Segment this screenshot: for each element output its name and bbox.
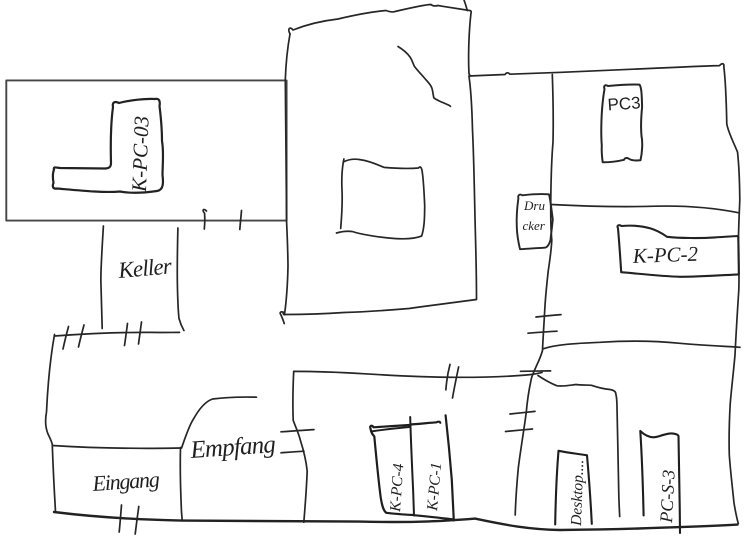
svg-text:K-PC-2: K-PC-2 <box>631 242 699 268</box>
svg-text:PC3: PC3 <box>607 93 641 114</box>
svg-text:Desktop....: Desktop.... <box>568 459 587 527</box>
svg-text:PC-S-3: PC-S-3 <box>656 469 679 524</box>
svg-text:Keller: Keller <box>116 253 174 283</box>
svg-text:K-PC-03: K-PC-03 <box>127 116 154 194</box>
svg-text:Eingang: Eingang <box>91 466 161 496</box>
svg-text:Dru: Dru <box>523 198 545 213</box>
svg-text:cker: cker <box>523 218 546 233</box>
svg-text:K-PC-4: K-PC-4 <box>387 463 407 514</box>
svg-text:K-PC-1: K-PC-1 <box>424 462 445 513</box>
svg-text:Empfang: Empfang <box>189 431 277 464</box>
